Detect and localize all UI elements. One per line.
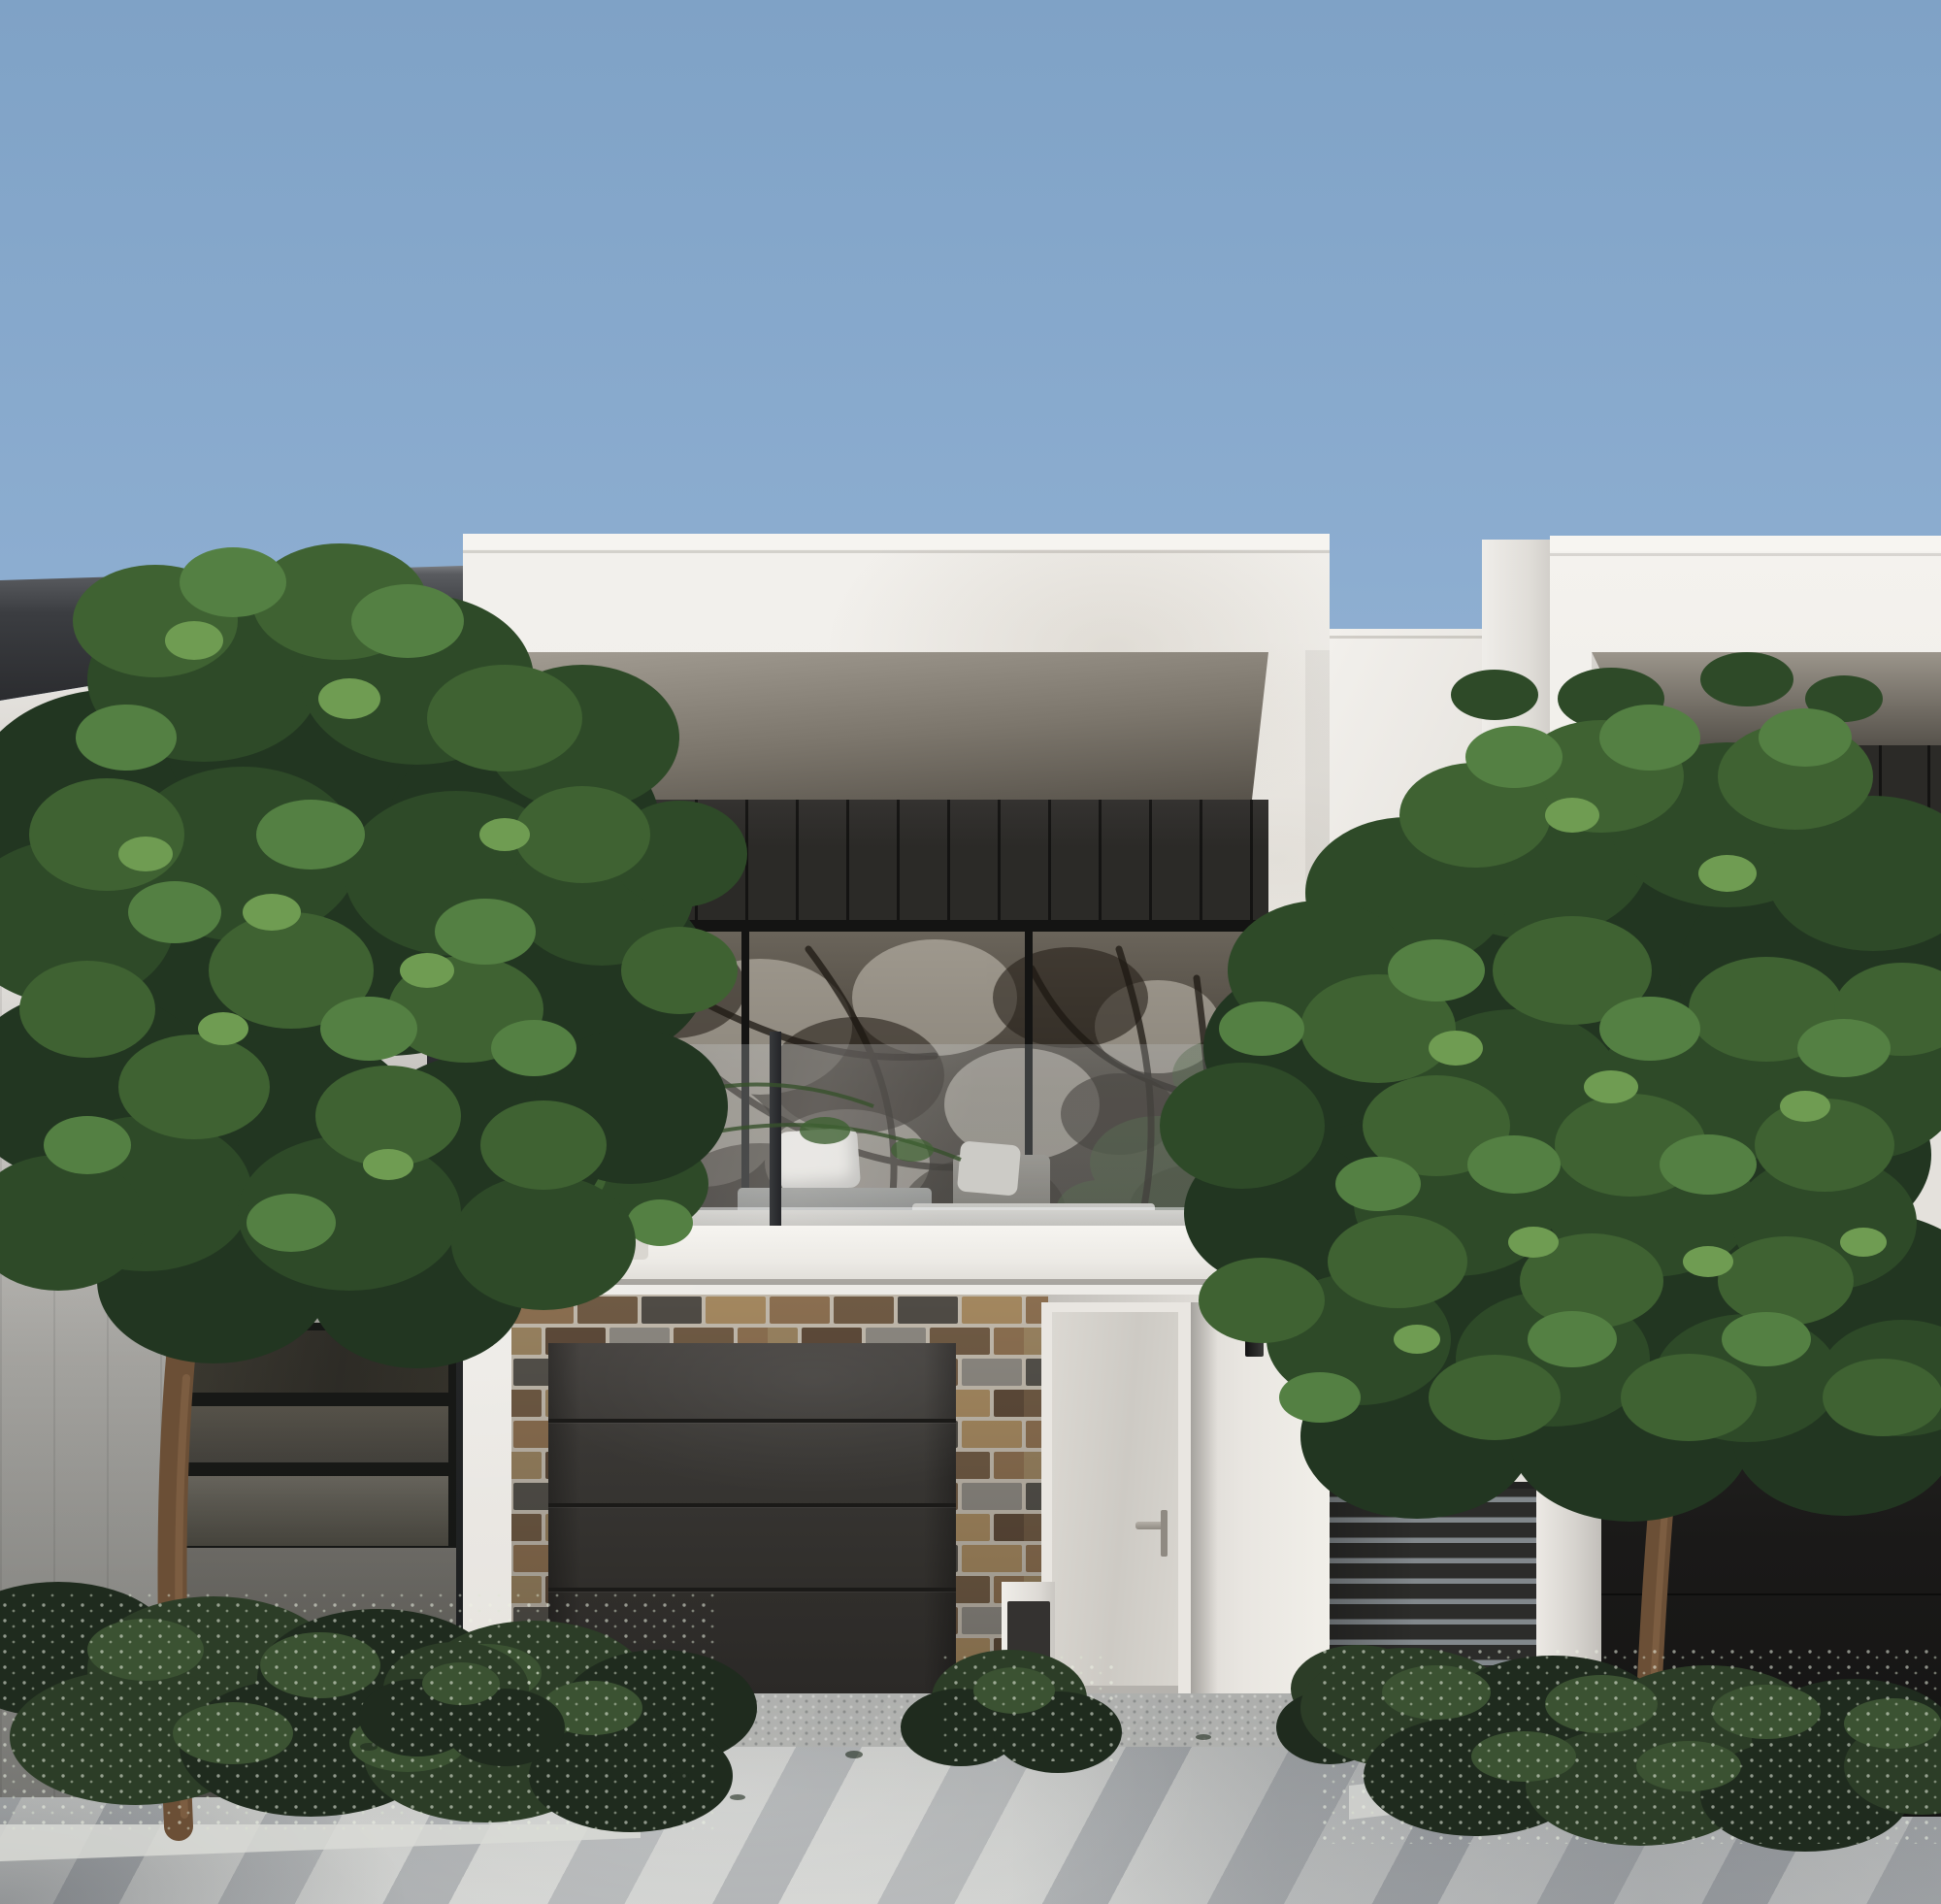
right-garden-bed (1276, 1645, 1941, 1852)
street-scene (0, 0, 1941, 1904)
garage-side-shrub-right (901, 1650, 1122, 1773)
garage-side-shrub-left (359, 1642, 565, 1766)
greenery-layer (0, 0, 1941, 1904)
right-tree (1160, 652, 1941, 1822)
left-tree-foliage (0, 543, 747, 1368)
right-tree-foliage (1160, 652, 1941, 1522)
